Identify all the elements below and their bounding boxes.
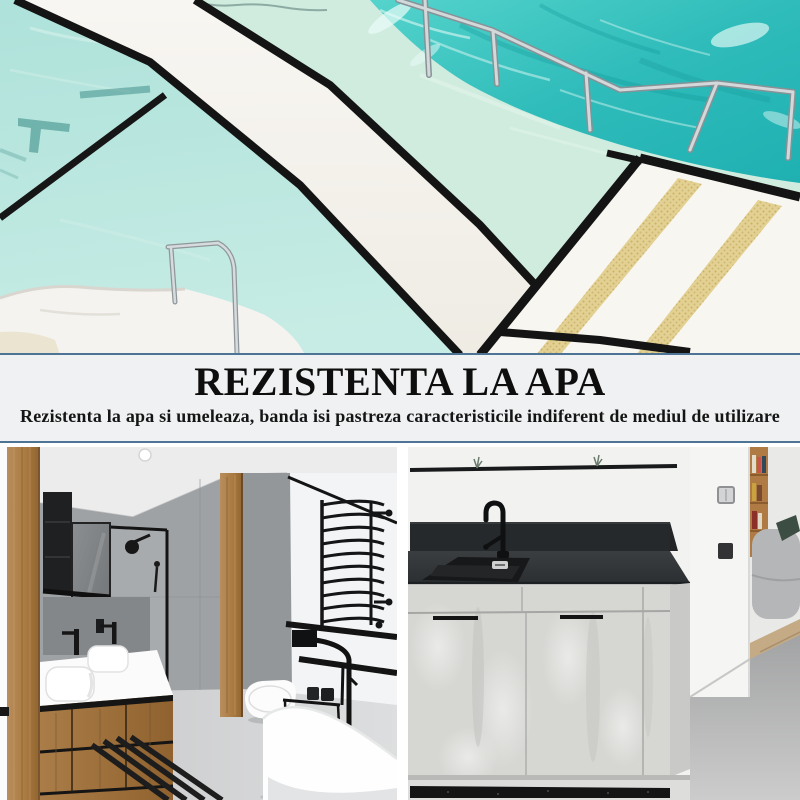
cup: [307, 687, 319, 700]
foreground-wood-panel: [0, 447, 40, 800]
marketing-collage: REZISTENTA LA APA Rezistenta la apa si u…: [0, 0, 800, 800]
drawer-handle: [560, 615, 603, 619]
vessel-sink: [46, 667, 94, 701]
floor-under-cabinet: [408, 780, 690, 800]
door-handle: [0, 707, 9, 716]
drawer-handle: [433, 616, 478, 620]
light-switch: [718, 487, 734, 503]
spotlight: [139, 449, 151, 461]
cup: [321, 688, 334, 701]
wall-niche: [292, 630, 317, 647]
vessel-sink: [88, 646, 128, 672]
wood-column: [220, 473, 243, 717]
banner-title: REZISTENTA LA APA: [0, 361, 800, 403]
kitchen-photo: [408, 447, 800, 800]
pool-photo: [0, 0, 800, 353]
banner-subtitle: Rezistenta la apa si umeleaza, banda isi…: [10, 406, 790, 427]
headline-banner: REZISTENTA LA APA Rezistenta la apa si u…: [0, 353, 800, 443]
wall-pillar: [690, 447, 750, 697]
shower-head: [125, 540, 139, 554]
concrete-cabinets: [408, 583, 690, 787]
light-switch: [718, 543, 733, 559]
floor-anti-slip-strip: [410, 786, 670, 798]
bathroom-photo: [0, 447, 397, 800]
